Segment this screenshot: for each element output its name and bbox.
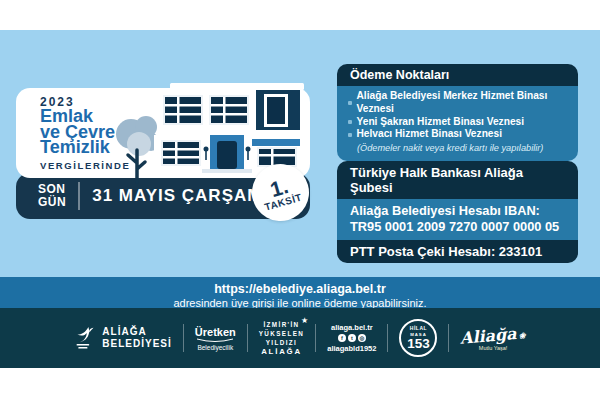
facebook-icon: f <box>338 334 346 342</box>
social-icons: f t ◎ <box>338 334 366 342</box>
payment-points-body: Aliağa Belediyesi Merkez Hizmet Binası V… <box>337 86 578 161</box>
municipality-name: ALİAĞA BELEDİYESİ <box>102 326 171 350</box>
seagull-icon <box>74 326 96 350</box>
epayment-url-link[interactable]: https://ebelediye.aliaga.bel.tr <box>214 282 386 296</box>
slogan-line: ALİAĞA <box>261 347 302 356</box>
payment-point-item: Aliağa Belediyesi Merkez Hizmet Binası V… <box>348 90 567 116</box>
payment-point-label: Aliağa Belediyesi Merkez Hizmet Binası V… <box>357 90 568 116</box>
iban-number: TR95 0001 2009 7270 0007 0000 05 <box>350 219 565 235</box>
footer-divider <box>387 324 388 352</box>
municipality-name-line1: ALİAĞA <box>102 326 171 338</box>
instagram-icon: ◎ <box>358 334 366 342</box>
swoosh-icon <box>196 338 234 343</box>
deadline-label-line2: GÜN <box>38 196 66 209</box>
banner-background: SON GÜN 31 MAYIS ÇARŞAMBA 2023 Emlak ve … <box>0 30 600 368</box>
slogan-line: YÜKSELEN <box>259 329 305 338</box>
iban-block: Aliağa Belediyesi Hesabı IBAN: TR95 0001… <box>337 199 578 240</box>
payment-point-label: Helvacı Hizmet Binası Veznesi <box>357 128 503 141</box>
web-social-block: aliaga.bel.tr f t ◎ aliagabld1952 <box>327 323 376 353</box>
slogan-line: YILDIZI <box>266 338 298 347</box>
payment-point-item: Helvacı Hizmet Binası Veznesi <box>348 128 567 141</box>
footer-divider <box>247 324 248 352</box>
aliaga-script-logo: Aliağa❀ Mutlu Yaşa! <box>460 326 525 351</box>
website-url: aliaga.bel.tr <box>331 323 373 332</box>
footer-divider <box>448 324 449 352</box>
ptt-account: PTT Posta Çeki Hesabı: 233101 <box>337 240 578 263</box>
uretken-subtitle: Belediyecilik <box>197 344 233 351</box>
bullet-icon <box>348 101 352 105</box>
flower-icon: ❀ <box>519 330 527 341</box>
hilal-masa-153-badge: HİLAL MASA 153 <box>399 319 437 357</box>
twitter-icon: t <box>348 334 356 342</box>
footer-logo-bar: ALİAĞA BELEDİYESİ Üretken Belediyecilik … <box>0 308 600 368</box>
star-icon: ★ <box>301 316 308 325</box>
payment-note: (Ödemeler nakit veya kredi kartı ile yap… <box>348 142 567 155</box>
deadline-label: SON GÜN <box>38 183 66 209</box>
payment-point-label: Yeni Şakran Hizmet Binası Veznesi <box>357 116 525 129</box>
slogan-line: İZMİR'İN <box>263 320 299 329</box>
uretken-title: Üretken <box>195 326 236 338</box>
online-payment-bar: https://ebelediye.aliaga.bel.tr adresind… <box>0 277 600 308</box>
bank-name: Türkiye Halk Bankası Aliağa Şubesi <box>337 161 578 199</box>
bullet-icon <box>348 120 352 124</box>
social-handle: aliagabld1952 <box>327 344 376 353</box>
payment-points-panel: Ödeme Noktaları Aliağa Belediyesi Merkez… <box>337 64 578 161</box>
uretken-logo: Üretken Belediyecilik <box>195 326 236 351</box>
script-brand-text: Aliağa <box>460 323 518 347</box>
script-brand: Aliağa❀ <box>460 323 527 348</box>
municipality-name-line2: BELEDİYESİ <box>102 338 171 350</box>
footer-divider <box>315 324 316 352</box>
iban-label: Aliağa Belediyesi Hesabı IBAN: <box>350 203 565 219</box>
payment-points-header: Ödeme Noktaları <box>337 64 578 86</box>
bank-info-panel: Türkiye Halk Bankası Aliağa Şubesi Aliağ… <box>337 161 578 263</box>
banner-canvas: SON GÜN 31 MAYIS ÇARŞAMBA 2023 Emlak ve … <box>0 0 600 400</box>
payment-point-item: Yeni Şakran Hizmet Binası Veznesi <box>348 116 567 129</box>
municipality-logo: ALİAĞA BELEDİYESİ <box>74 326 171 350</box>
hilal-number: 153 <box>407 337 430 350</box>
rising-star-logo: ★ İZMİR'İN YÜKSELEN YILDIZI ALİAĞA <box>259 320 305 356</box>
bullet-icon <box>348 133 352 137</box>
footer-divider <box>183 324 184 352</box>
vertical-divider <box>78 182 80 210</box>
